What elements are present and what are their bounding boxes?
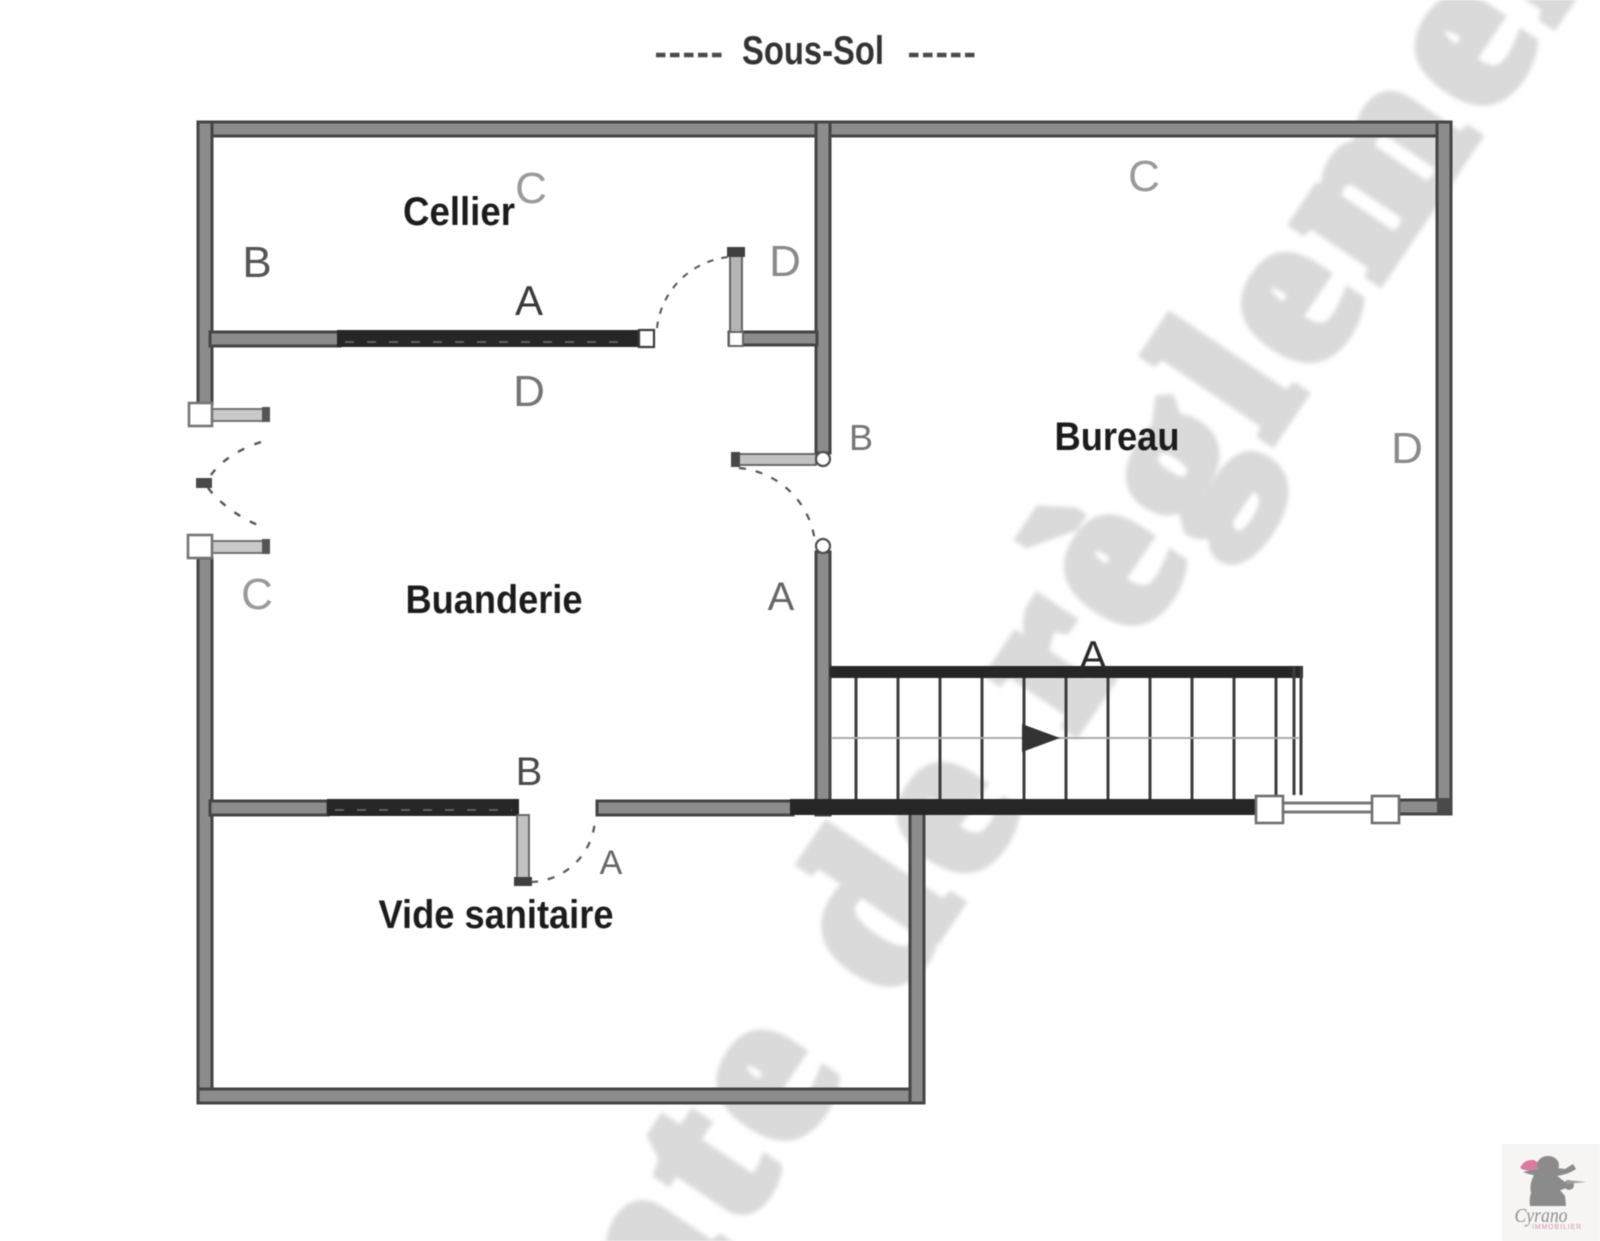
svg-text:A: A xyxy=(768,575,795,619)
svg-text:A: A xyxy=(600,844,623,882)
svg-text:IMMOBILIER: IMMOBILIER xyxy=(1532,1224,1582,1231)
svg-text:A: A xyxy=(1079,632,1107,679)
svg-text:B: B xyxy=(242,238,271,287)
svg-text:Sous-Sol: Sous-Sol xyxy=(742,29,884,73)
svg-text:C: C xyxy=(515,164,547,213)
svg-text:Buanderie: Buanderie xyxy=(406,578,583,622)
svg-text:Cellier: Cellier xyxy=(403,190,515,234)
svg-text:D: D xyxy=(1391,424,1423,473)
svg-text:B: B xyxy=(849,417,873,458)
svg-text:D: D xyxy=(769,237,801,286)
svg-text:Bureau: Bureau xyxy=(1055,415,1180,459)
svg-text:C: C xyxy=(241,570,273,619)
svg-text:nte de règlement: nte de règlement xyxy=(502,0,1600,1241)
svg-text:D: D xyxy=(513,367,545,416)
svg-text:B: B xyxy=(516,750,543,794)
svg-text:A: A xyxy=(515,277,543,324)
svg-text:C: C xyxy=(1128,152,1160,201)
svg-text:Vide sanitaire: Vide sanitaire xyxy=(379,893,614,937)
